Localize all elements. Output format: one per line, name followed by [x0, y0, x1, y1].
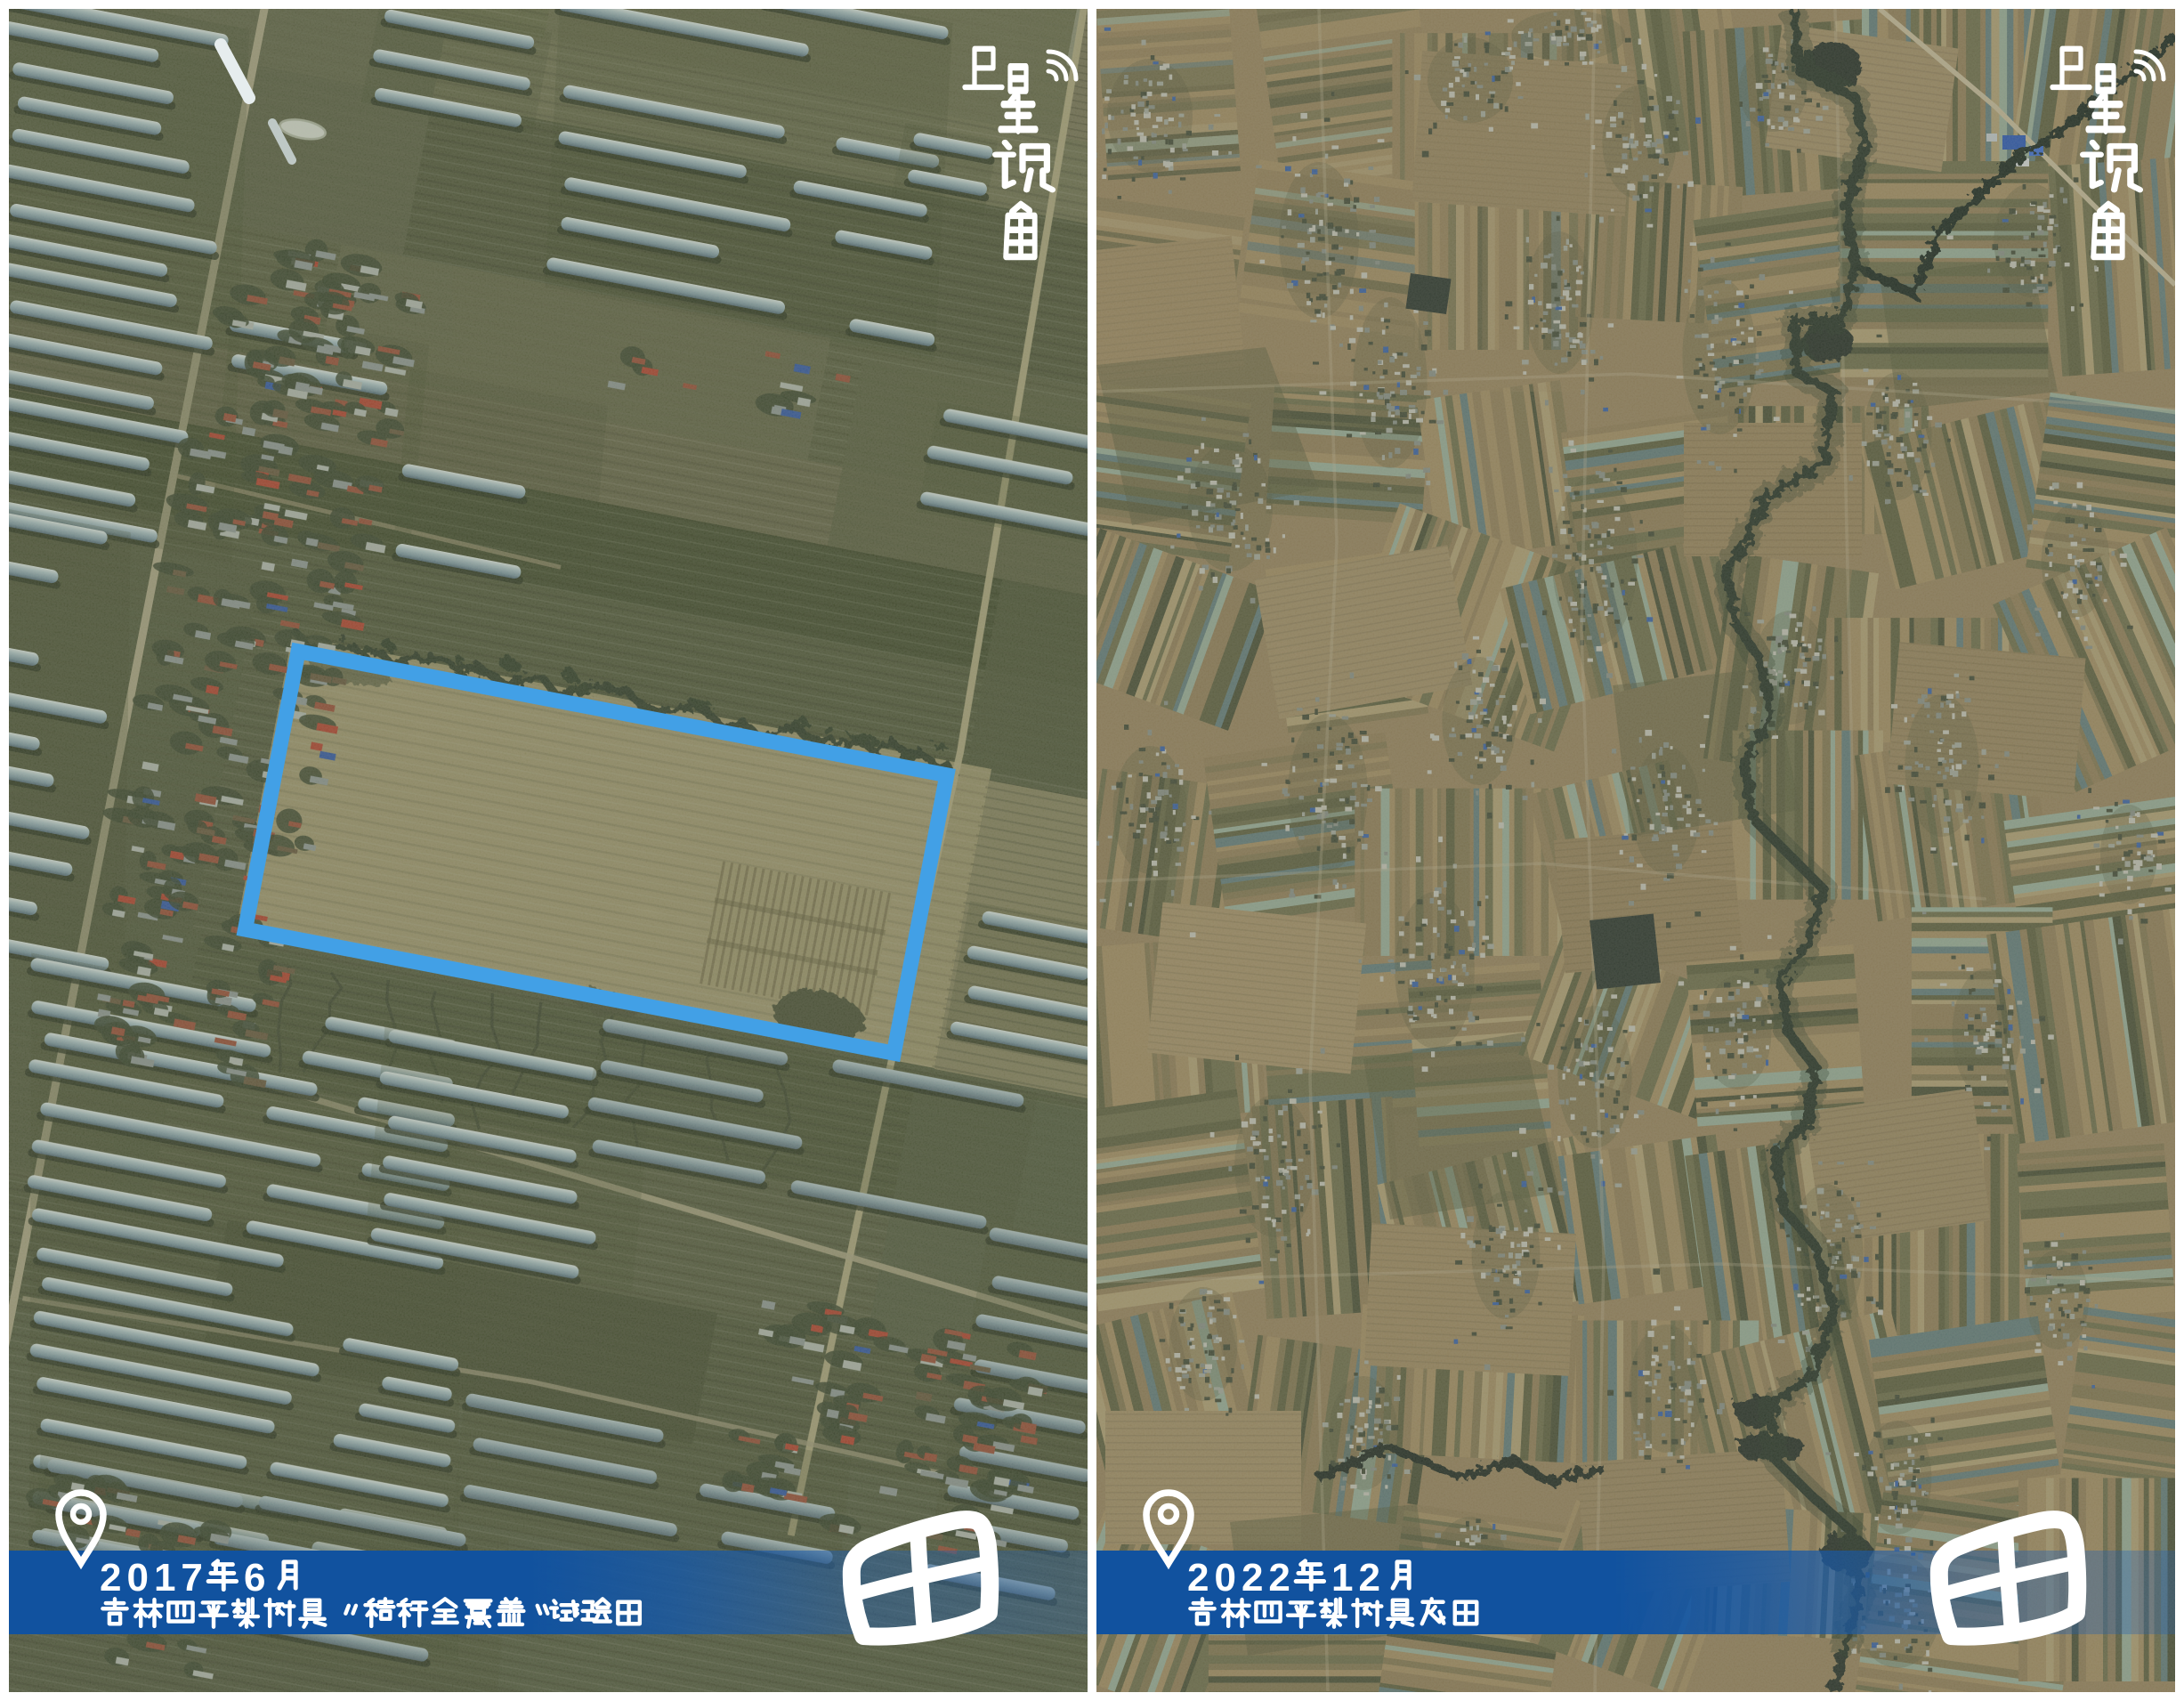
svg-text:2017: 2017: [100, 1556, 208, 1600]
svg-text:6: 6: [244, 1556, 271, 1600]
